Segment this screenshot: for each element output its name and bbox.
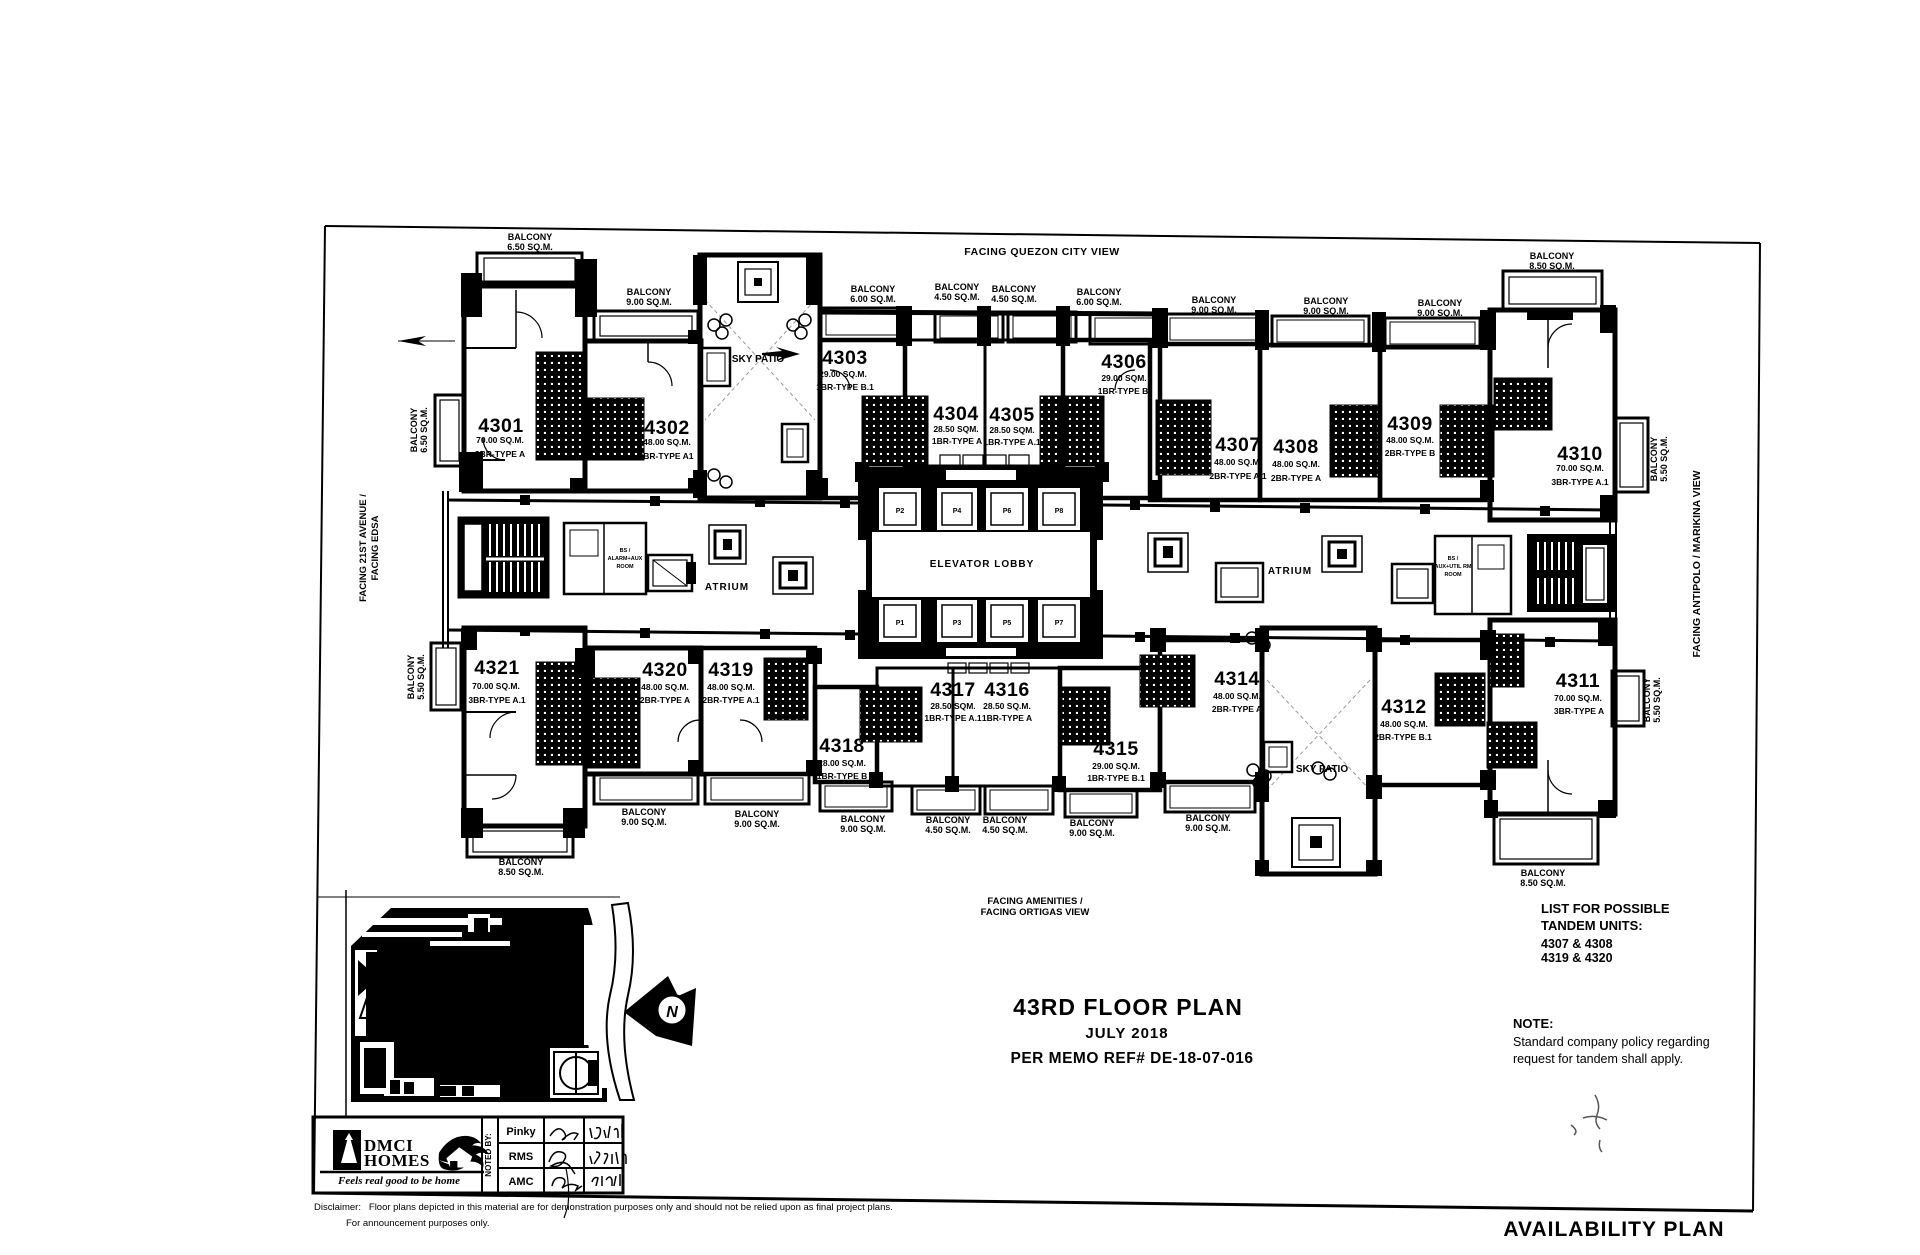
svg-text:28.50 SQ.M.: 28.50 SQ.M.: [983, 701, 1031, 711]
svg-text:1BR-TYPE A.1: 1BR-TYPE A.1: [983, 437, 1041, 447]
svg-text:BALCONY: BALCONY: [622, 807, 667, 817]
svg-text:BALCONY: BALCONY: [499, 857, 544, 867]
svg-text:TANDEM UNITS:: TANDEM UNITS:: [1541, 918, 1643, 933]
svg-text:1BR-TYPE B: 1BR-TYPE B: [817, 771, 868, 781]
svg-text:9.00 SQ.M.: 9.00 SQ.M.: [626, 297, 672, 307]
svg-text:FACING AMENITIES /: FACING AMENITIES /: [987, 896, 1083, 907]
svg-text:RMS: RMS: [509, 1151, 533, 1163]
svg-text:P7: P7: [1055, 620, 1064, 627]
svg-text:ELEVATOR LOBBY: ELEVATOR LOBBY: [930, 559, 1035, 570]
svg-text:P5: P5: [1003, 620, 1012, 627]
svg-text:29.00 SQ.M.: 29.00 SQ.M.: [1092, 761, 1140, 771]
svg-text:9.00 SQ.M.: 9.00 SQ.M.: [1303, 306, 1349, 316]
svg-text:ALARM+AUX: ALARM+AUX: [608, 556, 643, 562]
svg-text:BALCONY: BALCONY: [1649, 437, 1659, 482]
svg-text:2BR-TYPE A: 2BR-TYPE A: [1212, 704, 1262, 714]
svg-text:HOMES: HOMES: [364, 1151, 430, 1170]
svg-text:5.50 SQ.M.: 5.50 SQ.M.: [1652, 677, 1662, 723]
svg-text:70.00 SQ.M.: 70.00 SQ.M.: [476, 435, 524, 445]
svg-text:29.00 SQM.: 29.00 SQM.: [1101, 373, 1146, 383]
svg-text:1BR-TYPE B: 1BR-TYPE B: [1098, 386, 1149, 396]
svg-text:4319: 4319: [708, 659, 753, 681]
svg-text:8.50 SQ.M.: 8.50 SQ.M.: [498, 867, 544, 877]
svg-text:BALCONY: BALCONY: [1418, 298, 1463, 308]
svg-text:BALCONY: BALCONY: [406, 655, 416, 700]
svg-text:2BR-TYPE B: 2BR-TYPE B: [1385, 448, 1436, 458]
svg-text:NOTE:: NOTE:: [1513, 1016, 1553, 1031]
svg-text:BALCONY: BALCONY: [992, 284, 1037, 294]
svg-text:4320: 4320: [642, 659, 687, 681]
svg-text:FACING ANTIPOLO / MARIKINA VIE: FACING ANTIPOLO / MARIKINA VIEW: [1691, 470, 1703, 657]
svg-text:BALCONY: BALCONY: [841, 814, 886, 824]
svg-text:JULY 2018: JULY 2018: [1085, 1025, 1168, 1042]
svg-text:9.00 SQ.M.: 9.00 SQ.M.: [840, 824, 886, 834]
svg-text:8.50 SQ.M.: 8.50 SQ.M.: [1529, 261, 1575, 271]
svg-text:4305: 4305: [989, 404, 1034, 426]
svg-text:9.00 SQ.M.: 9.00 SQ.M.: [1417, 308, 1463, 318]
svg-text:48.00 SQ.M.: 48.00 SQ.M.: [1214, 457, 1262, 467]
svg-text:P1: P1: [896, 620, 905, 627]
svg-text:43RD FLOOR PLAN: 43RD FLOOR PLAN: [1013, 994, 1243, 1020]
svg-text:P3: P3: [953, 620, 962, 627]
svg-text:8.50 SQ.M.: 8.50 SQ.M.: [1520, 878, 1566, 888]
svg-text:FACING QUEZON CITY VIEW: FACING QUEZON CITY VIEW: [964, 246, 1119, 258]
svg-text:BALCONY: BALCONY: [1304, 296, 1349, 306]
svg-text:4310: 4310: [1557, 443, 1602, 465]
svg-text:70.00 SQ.M.: 70.00 SQ.M.: [472, 681, 520, 691]
svg-text:4301: 4301: [478, 415, 523, 437]
svg-text:5.50 SQ.M.: 5.50 SQ.M.: [416, 654, 426, 700]
svg-text:P2: P2: [896, 508, 905, 515]
svg-text:4308: 4308: [1273, 436, 1318, 458]
svg-text:4.50 SQ.M.: 4.50 SQ.M.: [991, 294, 1037, 304]
svg-text:70.00 SQ.M.: 70.00 SQ.M.: [1556, 463, 1604, 473]
svg-text:BALCONY: BALCONY: [1077, 287, 1122, 297]
svg-text:4.50 SQ.M.: 4.50 SQ.M.: [925, 825, 971, 835]
svg-text:4306: 4306: [1101, 351, 1146, 373]
svg-text:N: N: [666, 1004, 678, 1021]
svg-text:4318: 4318: [819, 735, 864, 757]
svg-text:4307: 4307: [1215, 434, 1260, 456]
svg-text:2BR-TYPE A: 2BR-TYPE A: [1271, 473, 1321, 483]
svg-text:1BR-TYPE A: 1BR-TYPE A: [982, 713, 1032, 723]
svg-text:3BR-TYPE A: 3BR-TYPE A: [1554, 706, 1604, 716]
svg-text:request for tandem shall apply: request for tandem shall apply.: [1513, 1052, 1683, 1066]
svg-text:70.00 SQ.M.: 70.00 SQ.M.: [1554, 693, 1602, 703]
svg-text:4319 & 4320: 4319 & 4320: [1541, 951, 1613, 965]
svg-text:BALCONY: BALCONY: [1192, 295, 1237, 305]
svg-text:29.00 SQ.M.: 29.00 SQ.M.: [819, 369, 867, 379]
svg-text:3BR-TYPE A.1: 3BR-TYPE A.1: [468, 695, 526, 705]
svg-text:6.00 SQ.M.: 6.00 SQ.M.: [850, 294, 896, 304]
svg-text:AUX+UTIL RM: AUX+UTIL RM: [1434, 564, 1471, 570]
svg-text:BALCONY: BALCONY: [851, 284, 896, 294]
svg-text:BALCONY: BALCONY: [1530, 251, 1575, 261]
svg-text:9.00 SQ.M.: 9.00 SQ.M.: [1185, 823, 1231, 833]
svg-text:4.50 SQ.M.: 4.50 SQ.M.: [934, 292, 980, 302]
svg-text:2BR-TYPE A1: 2BR-TYPE A1: [639, 451, 694, 461]
svg-text:Pinky: Pinky: [506, 1126, 536, 1138]
svg-text:BS /: BS /: [620, 548, 631, 554]
svg-text:ATRIUM: ATRIUM: [705, 582, 749, 593]
svg-text:BALCONY: BALCONY: [409, 408, 419, 453]
svg-text:BALCONY: BALCONY: [1070, 818, 1115, 828]
svg-text:BS /: BS /: [1448, 556, 1459, 562]
svg-text:Disclaimer: Floor plans depi: Disclaimer: Floor plans depicted in this…: [314, 1202, 893, 1213]
svg-text:Standard company policy regard: Standard company policy regarding: [1513, 1035, 1710, 1049]
svg-text:4315: 4315: [1093, 738, 1138, 760]
svg-text:BALCONY: BALCONY: [508, 232, 553, 242]
svg-text:PER MEMO REF# DE-18-07-016: PER MEMO REF# DE-18-07-016: [1011, 1050, 1254, 1067]
svg-text:For announcement purposes only: For announcement purposes only.: [346, 1218, 489, 1229]
svg-text:ATRIUM: ATRIUM: [1268, 566, 1312, 577]
svg-text:BALCONY: BALCONY: [735, 809, 780, 819]
svg-text:48.00 SQ.M.: 48.00 SQ.M.: [1380, 719, 1428, 729]
svg-text:ROOM: ROOM: [616, 564, 634, 570]
svg-text:BALCONY: BALCONY: [926, 815, 971, 825]
svg-text:BALCONY: BALCONY: [627, 287, 672, 297]
svg-text:ROOM: ROOM: [1444, 572, 1462, 578]
svg-text:P4: P4: [953, 508, 962, 515]
svg-text:28.00 SQ.M.: 28.00 SQ.M.: [818, 758, 866, 768]
svg-text:4307 & 4308: 4307 & 4308: [1541, 937, 1613, 951]
svg-text:28.50 SQM.: 28.50 SQM.: [933, 424, 978, 434]
svg-text:9.00 SQ.M.: 9.00 SQ.M.: [1191, 305, 1237, 315]
svg-text:NOTED BY:: NOTED BY:: [484, 1133, 493, 1176]
svg-text:6.00 SQ.M.: 6.00 SQ.M.: [1076, 297, 1122, 307]
svg-text:BALCONY: BALCONY: [1186, 813, 1231, 823]
svg-text:4302: 4302: [644, 417, 689, 439]
svg-text:4309: 4309: [1387, 413, 1432, 435]
svg-text:FACING EDSA: FACING EDSA: [370, 515, 381, 580]
svg-text:4304: 4304: [933, 403, 978, 425]
svg-text:BALCONY: BALCONY: [1642, 678, 1652, 723]
svg-text:4311: 4311: [1556, 670, 1600, 692]
svg-text:4303: 4303: [822, 347, 867, 369]
svg-text:AMC: AMC: [508, 1176, 533, 1188]
svg-text:BALCONY: BALCONY: [1521, 868, 1566, 878]
svg-text:9.00 SQ.M.: 9.00 SQ.M.: [621, 817, 667, 827]
svg-text:2BR-TYPE B.1: 2BR-TYPE B.1: [1374, 732, 1432, 742]
svg-text:1BR-TYPE A: 1BR-TYPE A: [932, 436, 982, 446]
svg-text:48.00 SQ.M.: 48.00 SQ.M.: [1213, 691, 1261, 701]
svg-text:FACING 21ST AVENUE /: FACING 21ST AVENUE /: [358, 494, 369, 602]
svg-text:BALCONY: BALCONY: [935, 282, 980, 292]
svg-text:1BR-TYPE B.1: 1BR-TYPE B.1: [816, 382, 874, 392]
svg-text:3BR-TYPE A.1: 3BR-TYPE A.1: [1551, 477, 1609, 487]
svg-text:48.00 SQ.M.: 48.00 SQ.M.: [1272, 459, 1320, 469]
svg-text:AVAILABILITY PLAN: AVAILABILITY PLAN: [1503, 1218, 1724, 1241]
svg-text:4314: 4314: [1214, 668, 1259, 690]
svg-text:9.00 SQ.M.: 9.00 SQ.M.: [734, 819, 780, 829]
svg-text:BALCONY: BALCONY: [983, 815, 1028, 825]
svg-text:9.00 SQ.M.: 9.00 SQ.M.: [1069, 828, 1115, 838]
svg-text:48.00 SQ.M.: 48.00 SQ.M.: [707, 682, 755, 692]
svg-text:4312: 4312: [1381, 696, 1426, 718]
svg-text:48.00 SQ.M.: 48.00 SQ.M.: [641, 682, 689, 692]
svg-text:4321: 4321: [474, 657, 519, 679]
svg-text:2BR-TYPE A.1: 2BR-TYPE A.1: [702, 695, 760, 705]
svg-text:LIST FOR POSSIBLE: LIST FOR POSSIBLE: [1541, 901, 1670, 916]
svg-text:28.50 SQM.: 28.50 SQM.: [989, 425, 1034, 435]
svg-text:6.50 SQ.M.: 6.50 SQ.M.: [507, 242, 553, 252]
svg-text:48.00 SQ.M.: 48.00 SQ.M.: [1386, 435, 1434, 445]
svg-text:1BR-TYPE B.1: 1BR-TYPE B.1: [1087, 773, 1145, 783]
svg-text:4.50 SQ.M.: 4.50 SQ.M.: [982, 825, 1028, 835]
svg-text:5.50 SQ.M.: 5.50 SQ.M.: [1659, 436, 1669, 482]
svg-text:FACING ORTIGAS VIEW: FACING ORTIGAS VIEW: [981, 907, 1090, 918]
svg-text:4316: 4316: [984, 679, 1029, 701]
svg-text:P8: P8: [1055, 508, 1064, 515]
svg-text:2BR-TYPE A: 2BR-TYPE A: [640, 695, 690, 705]
svg-text:6.50 SQ.M.: 6.50 SQ.M.: [419, 407, 429, 453]
svg-text:Feels real good to be home: Feels real good to be home: [337, 1175, 460, 1187]
svg-text:48.00 SQ.M.: 48.00 SQ.M.: [643, 437, 691, 447]
svg-text:P6: P6: [1003, 508, 1012, 515]
